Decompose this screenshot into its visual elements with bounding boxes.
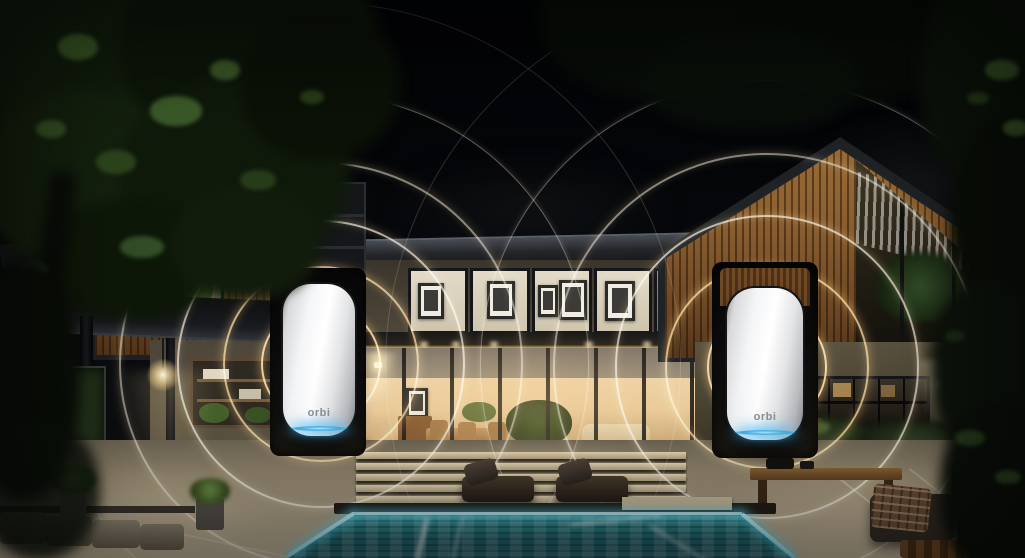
tanning-ledge xyxy=(622,497,732,510)
framed-photo xyxy=(418,283,444,319)
shelf-books xyxy=(239,389,261,399)
foliage-blob xyxy=(540,0,800,100)
led-status-light xyxy=(735,430,794,435)
tree-trunk xyxy=(21,169,77,390)
step xyxy=(356,452,686,459)
glass-divider xyxy=(300,246,364,249)
clerestory-window-3 xyxy=(532,268,592,334)
pool-led-edge-top xyxy=(352,512,742,515)
leaf-highlight xyxy=(300,90,324,104)
bench-object xyxy=(800,461,814,469)
clerestory-window-4 xyxy=(594,268,652,334)
orbi-router-left: orbi xyxy=(283,284,355,436)
clerestory-window-1 xyxy=(408,268,468,334)
framed-photo xyxy=(605,281,635,321)
window-glint xyxy=(833,383,851,397)
window-glint xyxy=(881,385,895,397)
shelf-plant xyxy=(245,407,271,423)
foliage-blob xyxy=(120,0,380,150)
leaf-highlight xyxy=(150,96,202,126)
foliage-blob xyxy=(0,0,210,160)
glass-divider xyxy=(300,214,364,217)
foliage-blob xyxy=(240,10,400,160)
pool-lounger-right xyxy=(556,476,628,502)
orbi-logo: orbi xyxy=(727,411,803,423)
bench-object xyxy=(766,458,794,469)
sectional-cushion xyxy=(140,524,184,550)
planter-plant xyxy=(50,464,96,494)
framed-photo xyxy=(538,285,558,317)
step xyxy=(356,463,686,470)
planter-plant xyxy=(190,478,230,504)
sectional-cushion xyxy=(92,520,140,548)
pool-lounger-left xyxy=(462,476,534,502)
wall-sconce-left xyxy=(374,362,382,368)
orbi-router-right: orbi xyxy=(727,288,803,440)
leaf-highlight xyxy=(210,60,240,80)
framed-photo xyxy=(559,280,587,320)
framed-photo xyxy=(487,281,515,319)
clerestory-window-2 xyxy=(470,268,530,334)
window-shelf xyxy=(121,275,161,278)
leaf-highlight xyxy=(96,150,136,174)
leaf-highlight xyxy=(967,92,989,104)
sectional-cushion xyxy=(46,516,92,546)
wall-sconce-glow-right xyxy=(916,360,968,424)
firewood-stack xyxy=(900,540,972,558)
led-status-light xyxy=(291,426,347,431)
leaf-highlight xyxy=(58,34,98,60)
leaf-highlight xyxy=(985,60,1019,80)
sectional-cushion xyxy=(0,512,46,544)
wood-bench-top xyxy=(750,468,902,480)
orbi-logo: orbi xyxy=(283,407,355,419)
armchair-pillow xyxy=(970,464,1008,490)
leaf-highlight xyxy=(36,120,66,138)
wicker-sofa-cushion xyxy=(960,506,1022,521)
foliage-blob xyxy=(740,0,980,100)
plaid-blanket xyxy=(870,483,932,533)
wall-sconce-right xyxy=(936,380,945,387)
left-upper-glass-strip xyxy=(298,182,366,280)
scene-stage: orbi orbi xyxy=(0,0,1025,558)
